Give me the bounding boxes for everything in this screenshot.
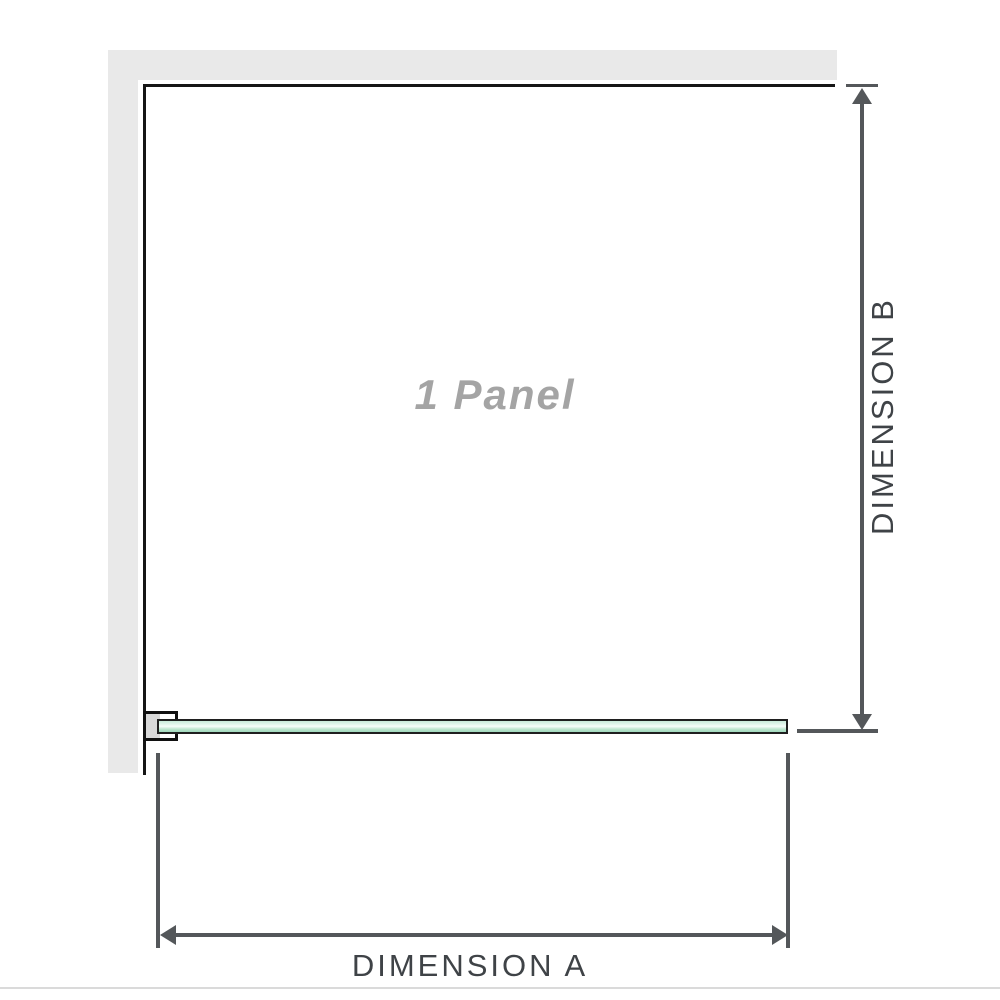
dimension-b-top-tick	[846, 84, 878, 87]
wall-left	[108, 50, 138, 773]
dimension-a-extension-left	[156, 753, 160, 948]
bottom-divider-line	[0, 987, 1000, 989]
diagram-canvas: 1 Panel DIMENSION B DIMENSION A	[0, 0, 1000, 1000]
dimension-b-label: DIMENSION B	[864, 206, 902, 626]
dimension-a-label: DIMENSION A	[270, 948, 670, 984]
wall-top-edge-line	[143, 84, 835, 87]
glass-panel-bar	[157, 719, 788, 734]
arrow-left-icon	[160, 925, 176, 945]
arrow-up-icon	[852, 88, 872, 104]
arrow-right-icon	[772, 925, 788, 945]
arrow-down-icon	[852, 714, 872, 730]
dimension-a-extension-right	[786, 753, 790, 948]
wall-left-edge-line	[143, 84, 146, 775]
dimension-a-line	[172, 933, 774, 937]
wall-top	[108, 50, 837, 80]
panel-count-label: 1 Panel	[143, 372, 835, 418]
